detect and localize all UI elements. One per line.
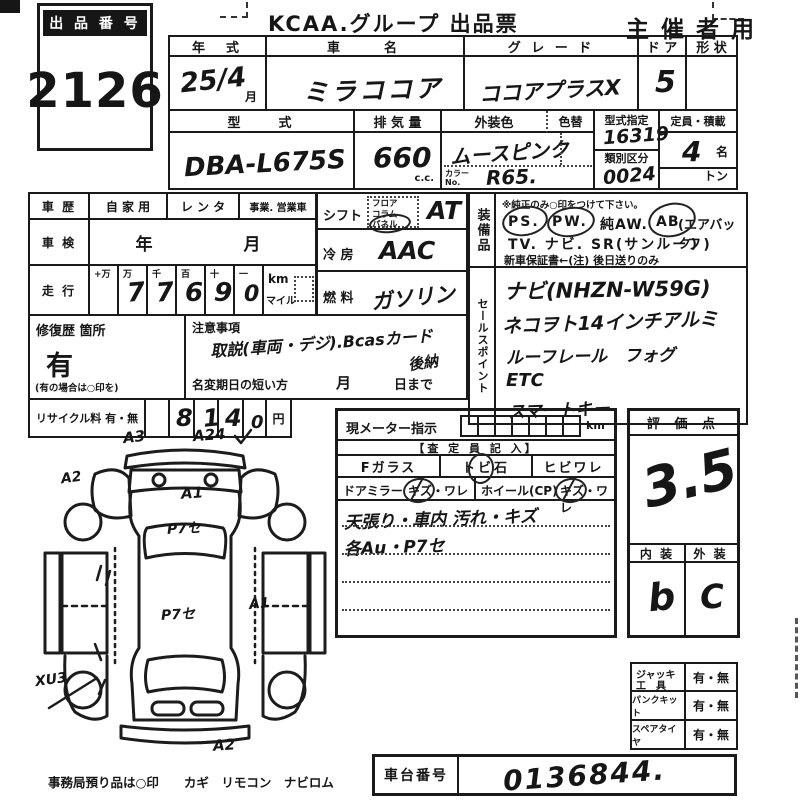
equipment-aw: 純AW.	[600, 214, 648, 234]
capacity-value: 4	[682, 135, 701, 168]
assessor-note-1: 天張り・車内 汚れ・キズ	[344, 502, 538, 534]
displacement-value-cell: 660 c.c.	[353, 131, 442, 190]
load-unit: トン	[704, 167, 728, 184]
shift-row: シフト フロア コラム パネル AT	[315, 192, 468, 230]
annotation-a1-hood: A1	[180, 483, 203, 502]
rename-label: 名変期日の短い方	[192, 376, 288, 393]
unit-km: km	[268, 272, 288, 286]
unit-mile: マイル	[266, 292, 296, 307]
month-suffix: 月	[245, 88, 257, 105]
exterior-color-box: 外装色 色替 ムースピンク カラーNo. R65.	[440, 109, 595, 190]
fuel-row: 燃 料 ガソリン	[315, 270, 468, 316]
lot-number-value: 2126	[40, 46, 150, 136]
meter-label: 現メーター指示	[346, 418, 437, 437]
ac-label: 冷 房	[323, 244, 354, 263]
mileage-cell-10k: 万 7	[117, 264, 148, 316]
note-line-4	[342, 609, 610, 611]
assessor-note-2: 各Au・P7セ	[344, 531, 445, 559]
repair-note: (有の場合は○印を)	[35, 380, 118, 394]
ac-row: 冷 房 AAC	[315, 228, 468, 272]
type-designation-box: 型式指定 16319 類別区分 0024	[593, 109, 660, 190]
history-option-private: 自 家 用	[88, 192, 168, 220]
mileage-digit-100: 6	[185, 278, 203, 308]
sales-points-box: セールスポイント ナビ(NHZN-W59G) ネコヲト14インチアルミ ルーフレ…	[468, 266, 748, 425]
color-no-value: R65.	[486, 164, 538, 190]
sales-point-4: ETC	[506, 370, 544, 391]
door-value: 5	[655, 65, 676, 100]
color-change-header: 色替	[546, 111, 593, 133]
inspection-label: 車 検	[28, 218, 90, 266]
shape-header: 形 状	[685, 35, 738, 57]
name-header: 車 名	[265, 35, 465, 57]
exterior-value: C	[699, 576, 726, 617]
mileage-digit-1k: 7	[155, 277, 176, 308]
displacement-value: 660	[373, 141, 431, 174]
grade-value-cell: ココアプラスX	[463, 55, 639, 111]
equipment-line2: TV. ナビ. SR(サンルーフ)	[508, 234, 712, 254]
shift-value: AT	[427, 196, 461, 225]
interior-header: 内 装	[630, 543, 686, 563]
repair-history-box: 修復歴 箇所 有 (有の場合は○印を)	[28, 314, 186, 400]
history-option-commercial: 事業. 営業車	[238, 192, 318, 220]
left-sill	[45, 553, 60, 653]
model-header: 型 式	[168, 109, 355, 133]
mileage-cell-1k: 千 7	[146, 264, 177, 316]
cowl-circle-left	[153, 474, 165, 486]
equipment-label-strip: 装備品	[470, 194, 496, 266]
meter-cell-7	[562, 415, 581, 437]
name-value: ミラココア	[302, 69, 443, 110]
rating-score: 3.5	[636, 436, 744, 520]
caution-value2: 後納	[407, 350, 440, 375]
mileage-digit-10: 9	[213, 277, 233, 308]
interior-value: b	[646, 574, 678, 621]
vin-label: 車台番号	[375, 757, 459, 793]
fuel-label: 燃 料	[323, 287, 354, 306]
annotation-a2-rear: A2	[212, 735, 235, 754]
sales-point-2: ネコヲト14インチアルミ	[502, 304, 719, 339]
rating-box: 評 価 点 3.5 内 装 外 装 b C	[627, 408, 740, 638]
caution-box: 注意事項 取説(車両・デジ).Bcasカード 後納 名変期日の短い方 月 日まで	[184, 314, 468, 400]
mileage-digit-1: 0	[244, 282, 259, 307]
fuel-value: ガソリン	[370, 278, 457, 317]
mileage-cell-1: 一 0	[233, 264, 264, 316]
capacity-header: 定員・積載	[660, 111, 736, 133]
rename-month: 月	[336, 372, 351, 393]
displacement-header: 排 気 量	[353, 109, 442, 133]
front-bumper	[125, 450, 245, 468]
sales-point-1: ナビ(NHZN-W59G)	[504, 272, 711, 306]
jack-label-cell: ジャッキ 工 具	[630, 662, 686, 692]
mirror-cell: ドアミラー キズ・ワレ	[338, 478, 476, 501]
sales-point-3: ルーフレール フォグ	[506, 341, 675, 369]
note-line-1	[342, 525, 610, 527]
color-change-divider	[560, 133, 562, 165]
mileage-header-100k: +万	[94, 267, 111, 280]
jack-value: 有・無	[684, 662, 738, 692]
caution-value: 取説(車両・デジ).Bcasカード	[209, 322, 433, 361]
color-no-label: カラーNo.	[445, 169, 473, 187]
meter-unit: km	[586, 419, 605, 432]
spare-label: スペアタイヤ	[630, 719, 686, 750]
right-sill	[310, 553, 325, 653]
caution-label: 注意事項	[192, 319, 240, 336]
history-option-rental: レ ン タ	[166, 192, 240, 220]
name-value-cell: ミラココア	[265, 55, 465, 111]
capacity-box: 定員・積載 4 名 トン	[658, 109, 738, 190]
puncture-label: パンクキット	[630, 690, 686, 721]
shift-label: シフト	[323, 205, 362, 224]
note-line-3	[342, 581, 610, 583]
year-value-cell: 25/4 月	[168, 55, 267, 111]
cowl-circle-right	[205, 474, 217, 486]
door-mirror-label: ドアミラー	[343, 482, 403, 499]
mileage-cell-100: 百 6	[175, 264, 206, 316]
history-label: 車 歴	[28, 192, 90, 220]
vin-box: 車台番号 0136844.	[372, 754, 737, 796]
mile-checkbox	[294, 276, 314, 302]
sheet-title: KCAA.グループ 出品票	[268, 8, 519, 38]
annotation-p7se-windshield: P7セ	[166, 517, 201, 539]
edge-dotted-mark	[795, 618, 798, 698]
door-header: ド ア	[637, 35, 687, 57]
repair-value: 有	[46, 344, 73, 383]
spare-value: 有・無	[684, 719, 738, 750]
equipment-box: 装備品 ※純正のみ○印をつけて下さい。 PS. PW. 純AW. AB (エアバ…	[468, 192, 748, 268]
rename-day: 日まで	[394, 374, 433, 393]
shift-option-floor: フロア	[372, 199, 414, 210]
grade-header: グ レ ー ド	[463, 35, 639, 57]
grade-value: ココアプラスX	[478, 71, 621, 108]
mileage-header-1: 一	[239, 267, 248, 280]
model-value: DBA-L675S	[183, 145, 346, 183]
tail-light-left	[152, 702, 184, 715]
model-value-cell: DBA-L675S	[168, 131, 355, 190]
exterior-header: 外 装	[684, 543, 737, 563]
left-front-wheel	[65, 504, 101, 540]
mileage-unit-cell: km マイル	[262, 264, 318, 316]
car-damage-diagram: A3 A24 A2 A1 P7セ P7セ A1 XU3 A2	[35, 428, 335, 758]
repair-label: 修復歴 箇所	[36, 320, 106, 339]
annotation-a1-quarter: A1	[248, 595, 270, 613]
sales-points-label-strip: セールスポイント	[470, 268, 496, 423]
f-glass-cell: Fガラス	[338, 456, 441, 478]
rating-header: 評 価 点	[630, 411, 737, 436]
office-note: 事務局預り品は○印 カギ リモコン ナビロム	[48, 772, 334, 791]
displacement-unit: c.c.	[415, 173, 434, 184]
inspection-value: 年 月	[88, 218, 318, 266]
capacity-unit: 名	[716, 143, 728, 160]
shape-value-cell	[685, 55, 738, 111]
rating-divider	[684, 563, 686, 635]
ext-color-header: 外装色	[442, 111, 546, 133]
tail-light-right	[191, 702, 223, 715]
rear-window	[146, 656, 225, 692]
ac-value: AAC	[379, 236, 435, 265]
wheel-cell: ホイール(CP) キズ・ワレ	[476, 478, 614, 501]
crack-cell: ヒビワレ	[533, 456, 614, 478]
annotation-a24: A24	[192, 425, 226, 445]
mileage-digit-10k: 7	[126, 277, 147, 308]
lot-number-header: 出 品 番 号	[43, 10, 147, 36]
equipment-label: 装備品	[473, 208, 492, 253]
mileage-cell-10: 十 9	[204, 264, 235, 316]
auction-sheet: 出 品 番 号 2126 KCAA.グループ 出品票 主 催 者 用 年 式 車…	[0, 0, 800, 800]
lot-number-box: 出 品 番 号 2126	[37, 3, 153, 151]
year-value: 25/4	[179, 62, 248, 100]
puncture-value: 有・無	[684, 690, 738, 721]
annotation-a3: A3	[122, 427, 146, 447]
mileage-cell-100k: +万	[88, 264, 119, 316]
classification-value: 0024	[602, 163, 657, 190]
year-header: 年 式	[168, 35, 267, 57]
a24-check-mark	[235, 430, 251, 443]
annotation-p7se-roof: P7セ	[160, 603, 195, 625]
right-front-wheel	[269, 504, 305, 540]
title-bracket-left	[220, 2, 248, 18]
sales-points-label: セールスポイント	[474, 298, 490, 394]
door-value-cell: 5	[637, 55, 687, 111]
wheel-label: ホイール(CP)	[481, 482, 558, 499]
corner-mark	[0, 0, 20, 13]
mileage-label: 走 行	[28, 264, 90, 316]
note-line-2	[342, 553, 610, 555]
meter-box: 現メーター指示 km 【査 定 員 記 入】 Fガラス トビ石 ヒビワレ ドアミ…	[335, 408, 617, 638]
vin-value: 0136844.	[502, 753, 667, 797]
annotation-a2-fender: A2	[60, 469, 83, 488]
